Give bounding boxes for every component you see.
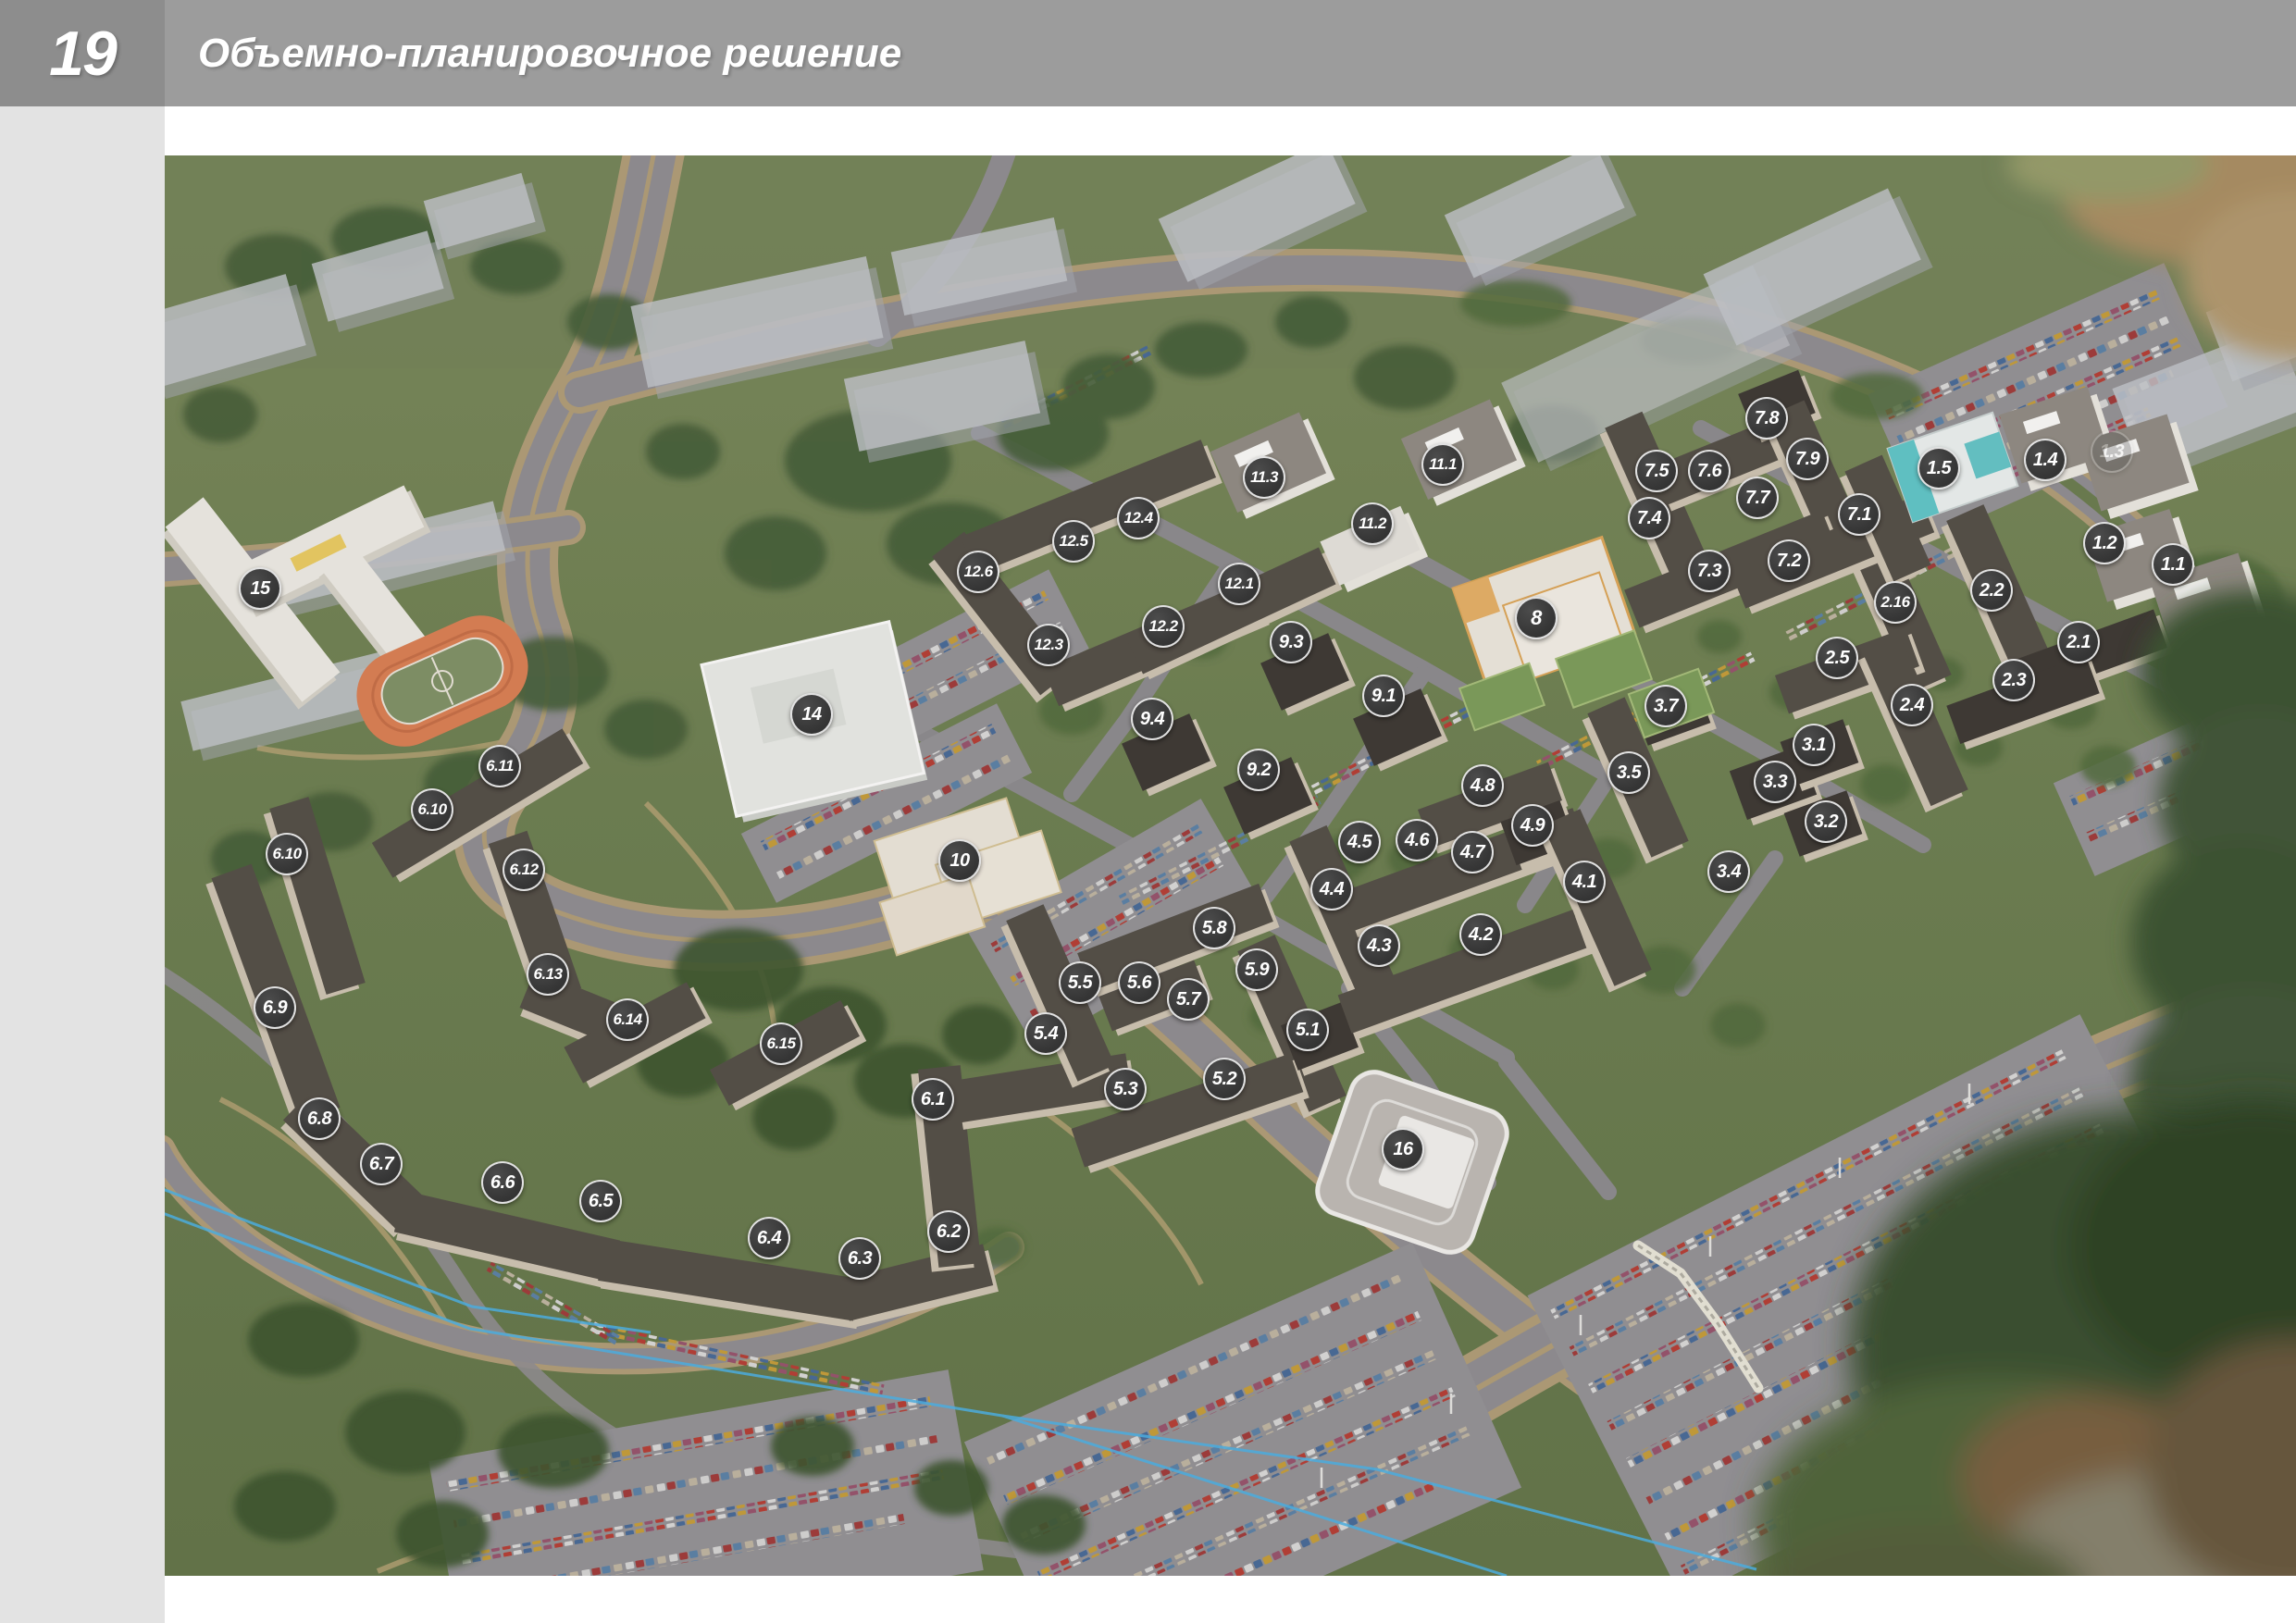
building-marker-3.2: 3.2 <box>1805 800 1847 843</box>
building-marker-3.7: 3.7 <box>1644 685 1687 727</box>
building-marker-7.5: 7.5 <box>1635 450 1678 492</box>
building-marker-4.8: 4.8 <box>1461 764 1504 807</box>
building-marker-10: 10 <box>938 839 981 882</box>
building-marker-6.6: 6.6 <box>481 1161 524 1204</box>
building-marker-7.8: 7.8 <box>1745 397 1788 440</box>
building-marker-6.4: 6.4 <box>748 1217 790 1259</box>
building-marker-4.1: 4.1 <box>1563 861 1606 903</box>
building-marker-1.1: 1.1 <box>2152 543 2194 586</box>
building-marker-5.8: 5.8 <box>1193 907 1235 949</box>
building-marker-2.2: 2.2 <box>1970 569 2013 612</box>
building-marker-4.5: 4.5 <box>1338 821 1381 863</box>
building-marker-4.2: 4.2 <box>1459 913 1502 956</box>
building-marker-6.9: 6.9 <box>254 986 296 1029</box>
building-marker-6.11: 6.11 <box>478 745 521 787</box>
building-marker-11.2: 11.2 <box>1351 502 1394 545</box>
building-marker-1.3: 1.3 <box>2091 430 2133 473</box>
building-marker-6.10: 6.10 <box>411 788 453 831</box>
page-title: Объемно-планировочное решение <box>198 0 901 106</box>
building-marker-11.1: 11.1 <box>1421 443 1464 486</box>
building-marker-12.3: 12.3 <box>1027 624 1070 666</box>
building-marker-4.3: 4.3 <box>1358 924 1400 967</box>
building-marker-6.1: 6.1 <box>912 1078 954 1121</box>
building-marker-12.6: 12.6 <box>957 551 999 593</box>
building-marker-6.3: 6.3 <box>838 1237 881 1280</box>
building-marker-6.12: 6.12 <box>503 849 545 891</box>
building-marker-7.3: 7.3 <box>1688 550 1731 592</box>
building-marker-5.4: 5.4 <box>1024 1012 1067 1055</box>
building-marker-6.14: 6.14 <box>606 998 649 1041</box>
building-marker-4.9: 4.9 <box>1511 804 1554 847</box>
page-number: 19 <box>49 18 116 90</box>
building-marker-5.2: 5.2 <box>1203 1058 1246 1100</box>
sidebar-strip <box>0 106 165 1623</box>
building-marker-3.5: 3.5 <box>1607 751 1650 794</box>
building-marker-14: 14 <box>790 693 833 736</box>
building-marker-15: 15 <box>239 567 281 610</box>
building-marker-2.4: 2.4 <box>1891 684 1933 726</box>
building-marker-8: 8 <box>1515 597 1558 639</box>
building-marker-4.6: 4.6 <box>1396 819 1438 861</box>
building-marker-7.6: 7.6 <box>1688 450 1731 492</box>
building-marker-6.10: 6.10 <box>266 833 308 875</box>
building-marker-11.3: 11.3 <box>1243 456 1285 499</box>
building-marker-12.5: 12.5 <box>1052 520 1095 563</box>
building-marker-7.2: 7.2 <box>1768 539 1810 582</box>
building-marker-7.9: 7.9 <box>1786 438 1829 480</box>
building-marker-4.4: 4.4 <box>1310 868 1353 911</box>
building-marker-5.3: 5.3 <box>1104 1068 1147 1110</box>
header-bar: 19 Объемно-планировочное решение <box>0 0 2296 106</box>
building-marker-1.2: 1.2 <box>2083 522 2126 564</box>
building-marker-5.1: 5.1 <box>1286 1009 1329 1051</box>
light-overlay <box>165 155 2296 1576</box>
masterplan-scene <box>165 155 2296 1576</box>
building-marker-6.5: 6.5 <box>579 1180 622 1222</box>
building-marker-12.4: 12.4 <box>1117 497 1160 539</box>
building-marker-9.3: 9.3 <box>1270 621 1312 663</box>
building-marker-6.7: 6.7 <box>360 1143 403 1185</box>
building-marker-2.16: 2.16 <box>1874 581 1917 624</box>
building-marker-6.13: 6.13 <box>527 953 569 996</box>
building-marker-7.7: 7.7 <box>1736 477 1779 519</box>
building-marker-6.8: 6.8 <box>298 1097 341 1140</box>
building-marker-2.1: 2.1 <box>2057 621 2100 663</box>
building-marker-9.4: 9.4 <box>1131 698 1173 740</box>
building-marker-2.5: 2.5 <box>1816 637 1858 679</box>
building-marker-1.5: 1.5 <box>1917 447 1960 489</box>
building-marker-1.4: 1.4 <box>2024 439 2066 481</box>
building-marker-9.1: 9.1 <box>1362 675 1405 717</box>
building-marker-9.2: 9.2 <box>1237 749 1280 791</box>
building-marker-3.3: 3.3 <box>1754 761 1796 803</box>
building-marker-4.7: 4.7 <box>1451 831 1494 873</box>
masterplan-render: 1514101686.16.26.36.46.56.66.76.86.96.10… <box>165 155 2296 1576</box>
building-marker-12.1: 12.1 <box>1218 563 1260 605</box>
page-number-block: 19 <box>0 0 165 106</box>
building-marker-16: 16 <box>1382 1128 1424 1171</box>
building-marker-5.6: 5.6 <box>1118 961 1160 1004</box>
building-marker-7.1: 7.1 <box>1838 493 1880 536</box>
building-marker-5.5: 5.5 <box>1059 961 1101 1004</box>
building-marker-3.1: 3.1 <box>1793 724 1835 766</box>
building-marker-7.4: 7.4 <box>1628 497 1670 539</box>
building-marker-3.4: 3.4 <box>1707 850 1750 893</box>
building-marker-5.7: 5.7 <box>1167 978 1210 1021</box>
building-marker-5.9: 5.9 <box>1235 948 1278 991</box>
building-marker-12.2: 12.2 <box>1142 605 1185 648</box>
building-marker-6.15: 6.15 <box>760 1022 802 1065</box>
building-marker-2.3: 2.3 <box>1992 659 2035 701</box>
building-marker-6.2: 6.2 <box>927 1210 970 1253</box>
